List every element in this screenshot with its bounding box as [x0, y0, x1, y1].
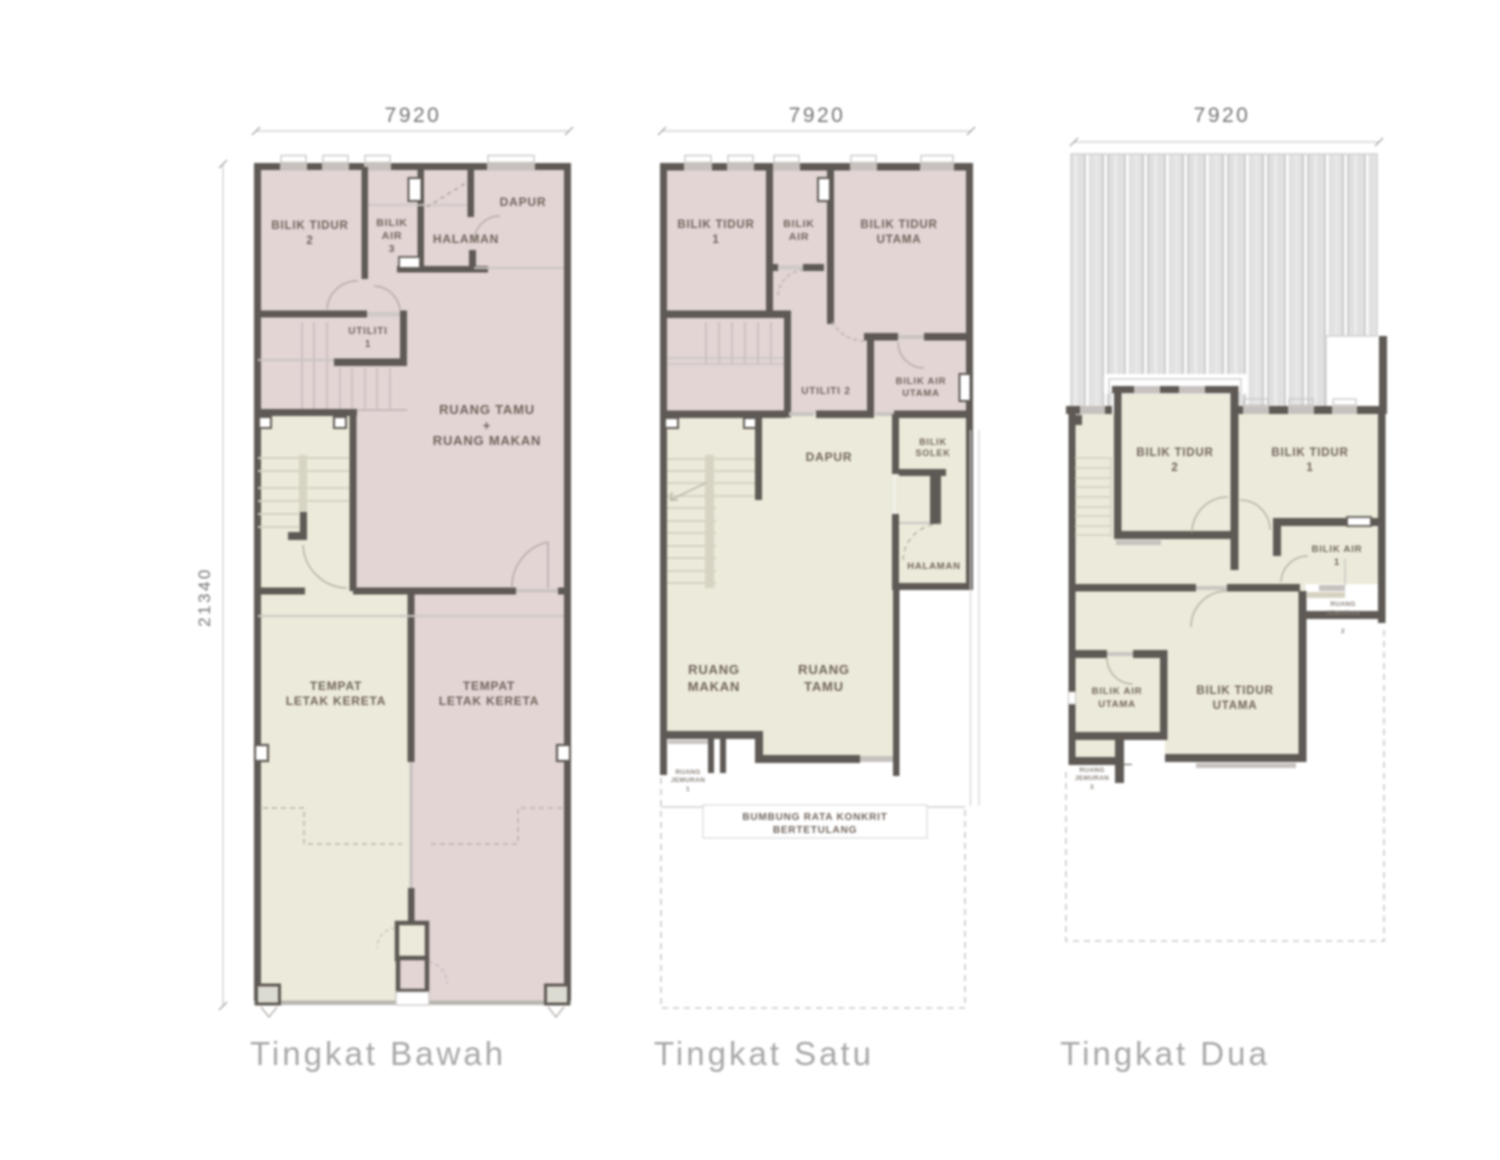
svg-text:MAKAN: MAKAN	[688, 679, 740, 694]
svg-text:+: +	[483, 418, 491, 433]
svg-text:RUANG: RUANG	[688, 662, 740, 677]
svg-text:BILIK AIR: BILIK AIR	[1092, 686, 1143, 697]
svg-text:DAPUR: DAPUR	[806, 450, 853, 464]
svg-text:1: 1	[365, 339, 371, 350]
svg-text:LETAK KERETA: LETAK KERETA	[286, 694, 387, 708]
svg-text:AIR: AIR	[789, 231, 809, 243]
svg-text:BILIK TIDUR: BILIK TIDUR	[1196, 685, 1273, 697]
svg-text:3: 3	[1090, 784, 1094, 791]
svg-text:BUMBUNG RATA KONKRIT: BUMBUNG RATA KONKRIT	[742, 812, 887, 823]
svg-text:JEMURAN: JEMURAN	[1075, 775, 1109, 782]
svg-text:Tingkat Bawah: Tingkat Bawah	[250, 1035, 506, 1072]
svg-text:UTAMA: UTAMA	[1098, 699, 1136, 710]
svg-text:Tingkat Satu: Tingkat Satu	[654, 1035, 874, 1072]
svg-text:DAPUR: DAPUR	[500, 195, 547, 209]
svg-text:BILIK: BILIK	[376, 217, 407, 229]
svg-text:UTAMA: UTAMA	[1213, 700, 1258, 712]
svg-text:BERTETULANG: BERTETULANG	[773, 825, 857, 836]
svg-text:UTAMA: UTAMA	[877, 234, 922, 246]
svg-text:LETAK KERETA: LETAK KERETA	[439, 694, 540, 708]
svg-text:RUANG: RUANG	[675, 769, 700, 776]
svg-text:UTILITI: UTILITI	[348, 326, 387, 337]
svg-text:BILIK TIDUR: BILIK TIDUR	[677, 219, 754, 231]
svg-text:BILIK AIR: BILIK AIR	[896, 376, 947, 387]
svg-text:RUANG MAKAN: RUANG MAKAN	[433, 433, 541, 448]
svg-text:21340: 21340	[195, 567, 214, 627]
svg-text:JEMURAN: JEMURAN	[1326, 610, 1360, 617]
svg-text:HALAMAN: HALAMAN	[907, 561, 961, 572]
svg-text:7920: 7920	[789, 104, 846, 127]
svg-text:TEMPAT: TEMPAT	[463, 679, 515, 693]
svg-text:1: 1	[1306, 462, 1313, 474]
svg-text:BILIK TIDUR: BILIK TIDUR	[271, 220, 348, 232]
svg-text:UTILITI 2: UTILITI 2	[801, 386, 850, 397]
svg-text:AIR: AIR	[382, 230, 402, 242]
svg-text:Tingkat Dua: Tingkat Dua	[1060, 1035, 1270, 1072]
svg-text:1: 1	[1334, 557, 1340, 568]
svg-text:BILIK TIDUR: BILIK TIDUR	[1136, 447, 1213, 459]
svg-text:7920: 7920	[385, 104, 442, 127]
svg-text:UTAMA: UTAMA	[902, 388, 940, 399]
svg-text:HALAMAN: HALAMAN	[433, 232, 499, 246]
svg-text:SOLEK: SOLEK	[915, 448, 950, 458]
svg-text:2: 2	[1341, 628, 1345, 635]
svg-text:1: 1	[712, 234, 719, 246]
svg-text:TEMPAT: TEMPAT	[310, 679, 362, 693]
svg-text:1: 1	[686, 786, 690, 793]
svg-text:JEMURAN: JEMURAN	[671, 777, 705, 784]
svg-text:BILIK: BILIK	[919, 437, 947, 447]
svg-text:RUANG: RUANG	[1330, 601, 1355, 608]
svg-text:BILIK AIR: BILIK AIR	[1312, 544, 1363, 555]
svg-text:TAMU: TAMU	[804, 679, 844, 694]
svg-text:BILIK TIDUR: BILIK TIDUR	[1271, 447, 1348, 459]
svg-text:RUANG TAMU: RUANG TAMU	[439, 402, 535, 417]
svg-text:2: 2	[306, 235, 313, 247]
svg-text:3: 3	[389, 243, 396, 255]
svg-text:2: 2	[1171, 462, 1178, 474]
svg-text:RUANG: RUANG	[798, 662, 850, 677]
svg-text:BILIK TIDUR: BILIK TIDUR	[860, 219, 937, 231]
svg-text:RUANG: RUANG	[1079, 767, 1104, 774]
svg-text:7920: 7920	[1194, 104, 1251, 127]
svg-text:BILIK: BILIK	[783, 218, 814, 230]
